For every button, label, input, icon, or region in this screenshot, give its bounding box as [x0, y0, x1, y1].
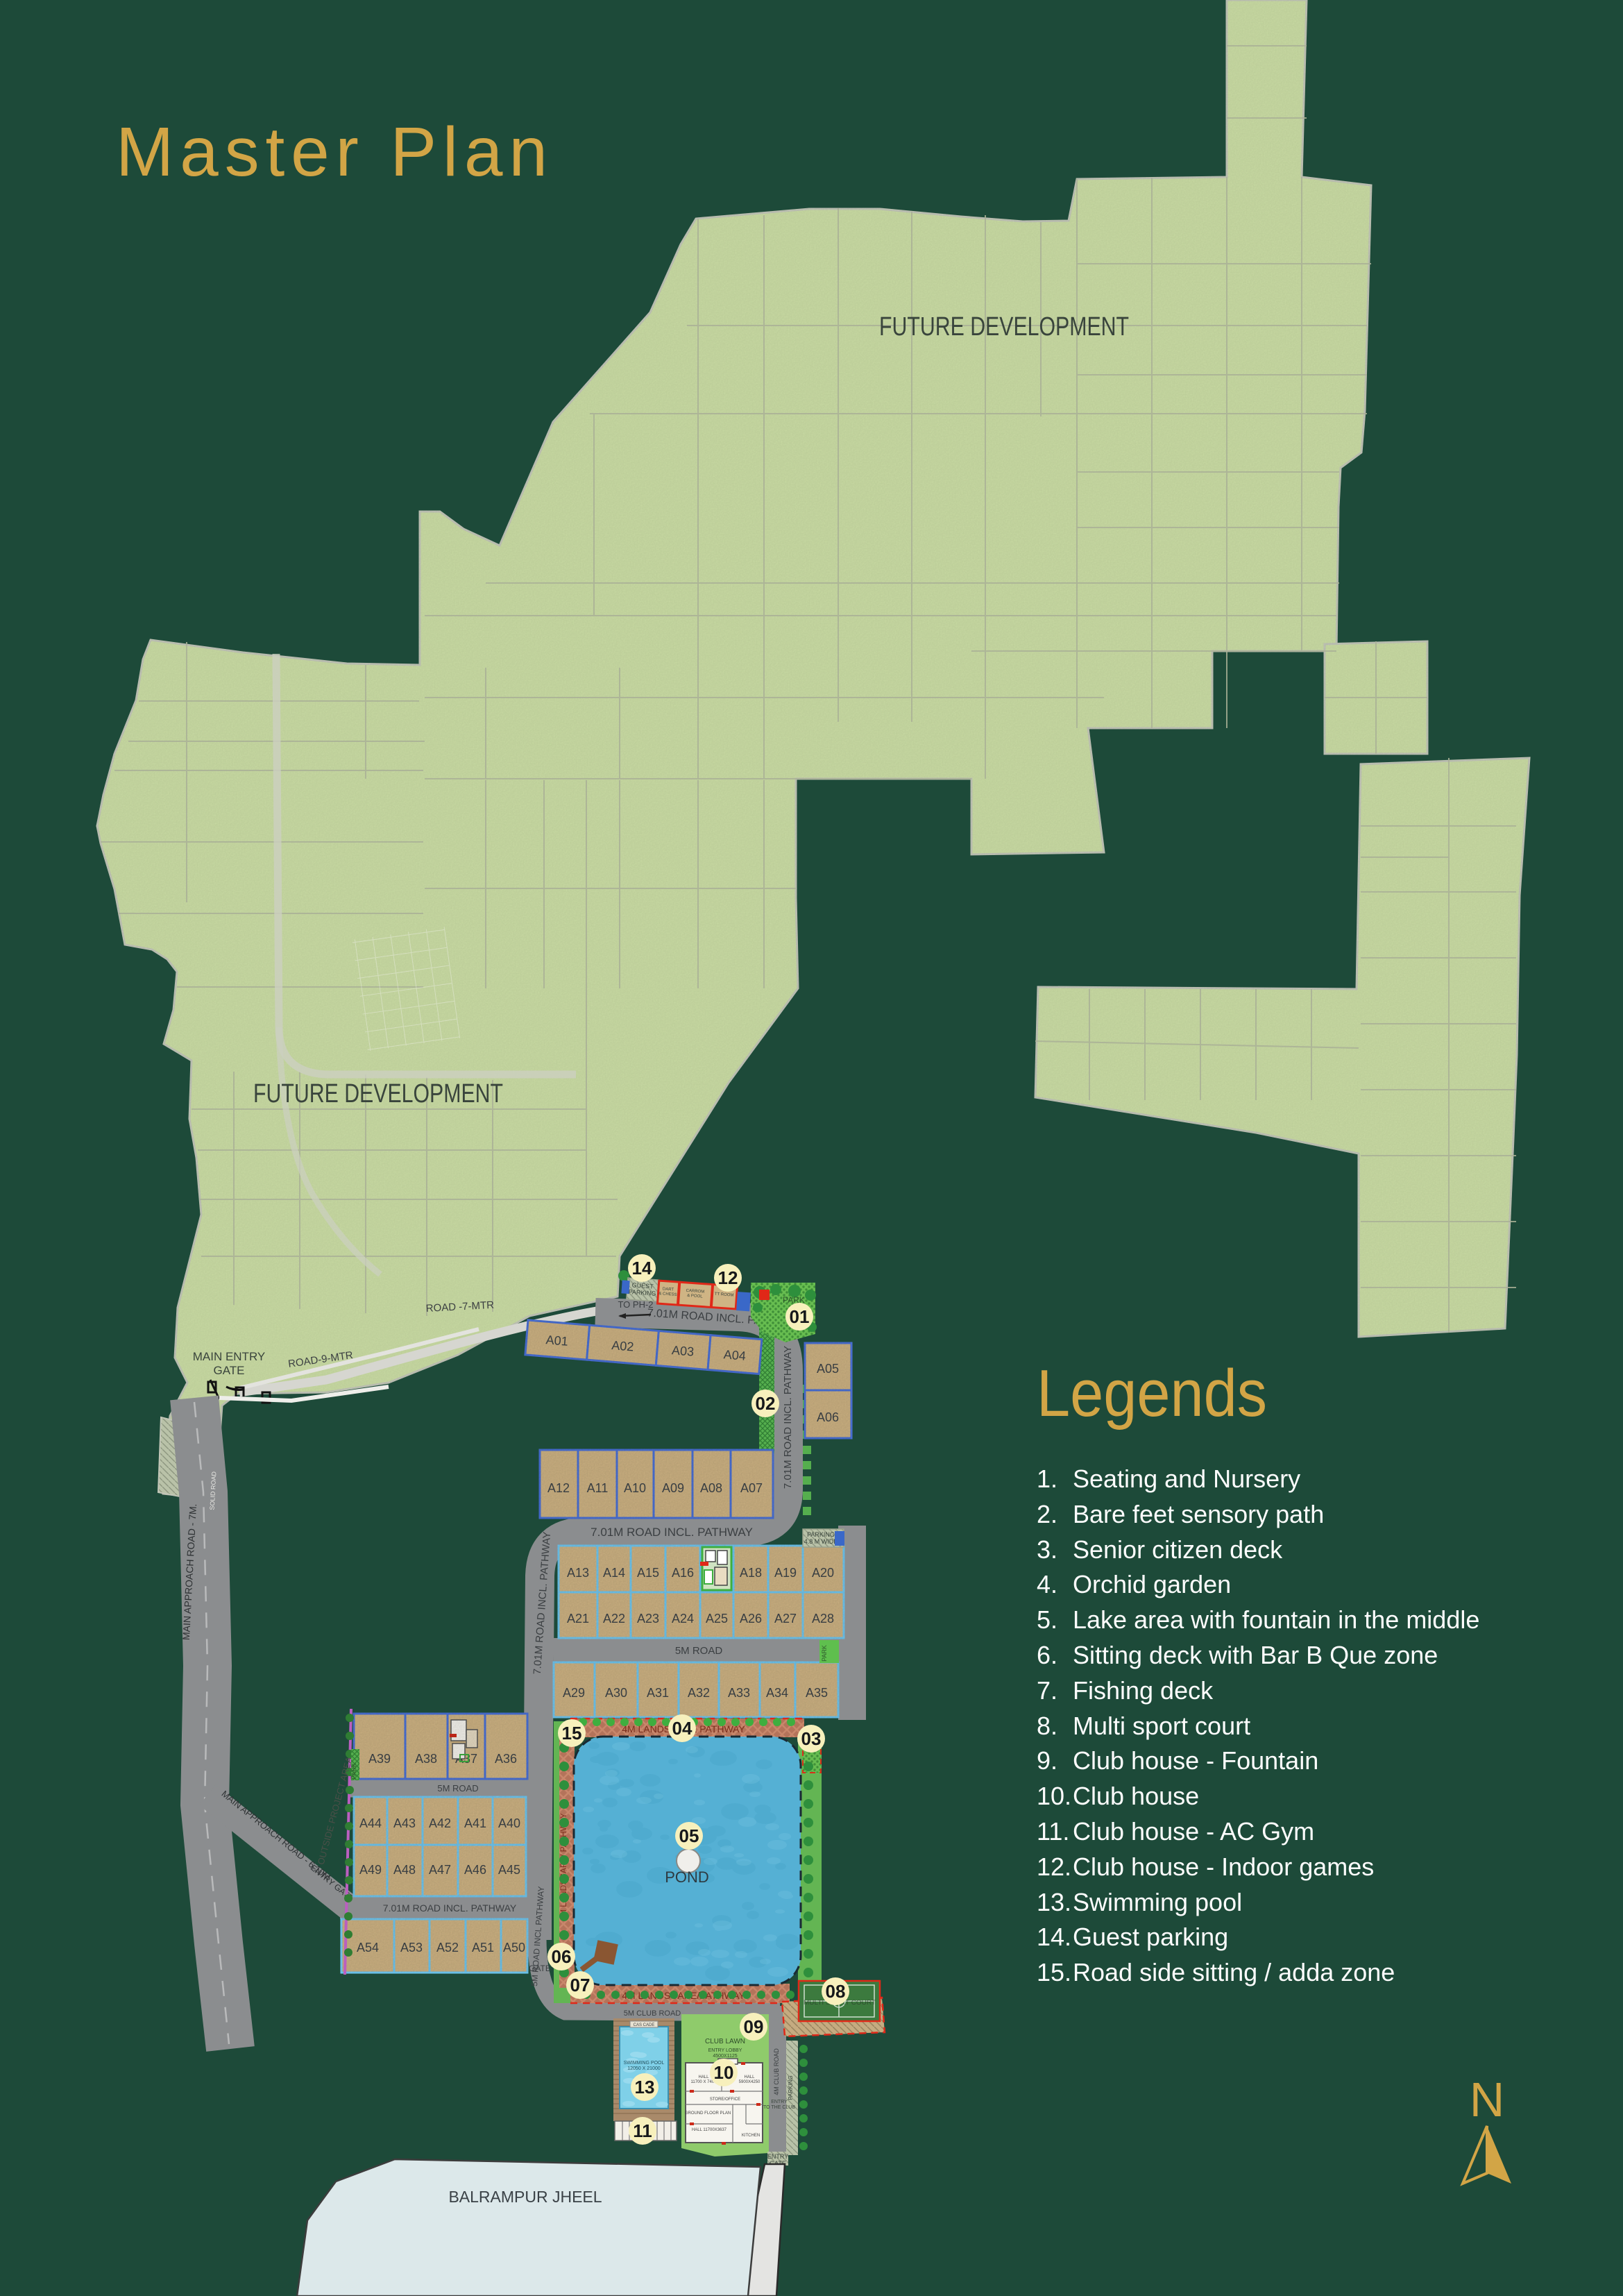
- svg-text:POND: POND: [665, 1868, 709, 1886]
- svg-text:5.: 5.: [1037, 1605, 1057, 1634]
- svg-text:4M LANDSCAPE/ PATHWAY: 4M LANDSCAPE/ PATHWAY: [559, 1813, 568, 1921]
- svg-text:Guest parking: Guest parking: [1073, 1923, 1228, 1951]
- svg-text:Orchid garden: Orchid garden: [1073, 1570, 1231, 1598]
- svg-text:Seating and Nursery: Seating and Nursery: [1073, 1464, 1300, 1493]
- svg-text:KITCHEN: KITCHEN: [742, 2134, 760, 2138]
- svg-text:GROUND FLOOR PLAN: GROUND FLOOR PLAN: [685, 2111, 731, 2116]
- svg-text:5M ROAD: 5M ROAD: [675, 1645, 723, 1657]
- svg-text:4M LANDSCAPE/PATHWAY: 4M LANDSCAPE/PATHWAY: [622, 1990, 745, 2001]
- svg-text:14.: 14.: [1037, 1923, 1071, 1951]
- svg-text:FUTURE DEVELOPMENT: FUTURE DEVELOPMENT: [879, 312, 1129, 341]
- svg-text:5M CLUB ROAD: 5M CLUB ROAD: [624, 2009, 681, 2018]
- svg-text:06: 06: [552, 1946, 572, 1967]
- svg-text:ENTRY: ENTRY: [771, 2100, 788, 2104]
- svg-text:10: 10: [714, 2062, 734, 2083]
- svg-text:GATE: GATE: [213, 1364, 244, 1377]
- svg-text:04: 04: [672, 1718, 692, 1739]
- svg-text:7.: 7.: [1037, 1676, 1057, 1705]
- svg-text:ENTRY LOBBY: ENTRY LOBBY: [708, 2048, 742, 2053]
- svg-text:Legends: Legends: [1037, 1356, 1267, 1430]
- svg-text:FUTURE DEVELOPMENT: FUTURE DEVELOPMENT: [253, 1079, 503, 1108]
- svg-text:PARKING: PARKING: [788, 2075, 794, 2100]
- svg-text:4.: 4.: [1037, 1570, 1057, 1598]
- svg-text:11: 11: [633, 2120, 652, 2141]
- svg-text:7.01M ROAD INCL. PATHWAY: 7.01M ROAD INCL. PATHWAY: [590, 1526, 753, 1539]
- svg-text:Bare feet sensory path: Bare feet sensory path: [1073, 1500, 1324, 1528]
- svg-text:15: 15: [562, 1723, 582, 1744]
- svg-text:8.: 8.: [1037, 1712, 1057, 1740]
- svg-text:CLUB LAWN: CLUB LAWN: [705, 2038, 745, 2045]
- svg-text:PARK: PARK: [350, 1763, 357, 1780]
- svg-text:7.01M ROAD INCL. PATHWAY: 7.01M ROAD INCL. PATHWAY: [782, 1346, 794, 1489]
- svg-text:Club house - Fountain: Club house - Fountain: [1073, 1746, 1318, 1775]
- svg-text:08: 08: [826, 1981, 846, 2002]
- svg-text:Club house - AC Gym: Club house - AC Gym: [1073, 1817, 1314, 1846]
- svg-text:PARKING: PARKING: [807, 1531, 835, 1538]
- svg-text:2.: 2.: [1037, 1500, 1057, 1528]
- svg-text:02: 02: [756, 1393, 776, 1414]
- svg-text:5900X4250: 5900X4250: [739, 2080, 760, 2084]
- svg-text:15.: 15.: [1037, 1958, 1071, 1986]
- svg-text:4500X1125: 4500X1125: [713, 2054, 737, 2059]
- svg-text:13: 13: [635, 2077, 655, 2097]
- svg-text:05: 05: [679, 1825, 699, 1846]
- svg-text:TO THE CLUB: TO THE CLUB: [763, 2105, 795, 2110]
- svg-text:N: N: [1470, 2073, 1505, 2127]
- svg-text:HALL: HALL: [698, 2075, 709, 2079]
- svg-text:Sitting deck with Bar B Que zo: Sitting deck with Bar B Que zone: [1073, 1641, 1438, 1669]
- svg-text:GATE: GATE: [529, 1964, 551, 1973]
- svg-text:Lake area with fountain in the: Lake area with fountain in the middle: [1073, 1605, 1479, 1634]
- svg-text:CAS CADE: CAS CADE: [634, 2023, 655, 2027]
- svg-text:3.: 3.: [1037, 1535, 1057, 1564]
- svg-text:03: 03: [801, 1728, 822, 1749]
- svg-text:Fishing deck: Fishing deck: [1073, 1676, 1214, 1705]
- svg-text:10.: 10.: [1037, 1782, 1071, 1810]
- svg-text:HALL: HALL: [744, 2075, 755, 2079]
- svg-text:STORE/OFFICE: STORE/OFFICE: [710, 2097, 740, 2102]
- svg-text:ENTRY: ENTRY: [767, 2153, 788, 2160]
- svg-text:DART: DART: [663, 1288, 674, 1292]
- svg-text:HALL 11700X3637: HALL 11700X3637: [692, 2128, 727, 2132]
- svg-text:MAIN ENTRY: MAIN ENTRY: [193, 1350, 266, 1363]
- svg-text:BALRAMPUR JHEEL: BALRAMPUR JHEEL: [448, 2188, 602, 2206]
- svg-text:7.01M ROAD INCL. PATHWAY: 7.01M ROAD INCL. PATHWAY: [383, 1902, 517, 1914]
- svg-text:9.: 9.: [1037, 1746, 1057, 1775]
- svg-text:Club house - Indoor games: Club house - Indoor games: [1073, 1852, 1374, 1881]
- svg-text:5M ROAD: 5M ROAD: [437, 1783, 478, 1793]
- svg-text:Senior citizen deck: Senior citizen deck: [1073, 1535, 1283, 1564]
- svg-text:Club house: Club house: [1073, 1782, 1199, 1810]
- svg-text:13.: 13.: [1037, 1888, 1071, 1916]
- svg-text:SWIMMING POOL: SWIMMING POOL: [624, 2061, 665, 2066]
- svg-text:Multi sport court: Multi sport court: [1073, 1712, 1250, 1740]
- svg-text:07: 07: [570, 1975, 590, 1995]
- svg-text:4M CLUB ROAD: 4M CLUB ROAD: [773, 2048, 780, 2095]
- svg-text:Swimming pool: Swimming pool: [1073, 1888, 1242, 1916]
- svg-text:4.8 M WIDE: 4.8 M WIDE: [804, 1538, 838, 1545]
- svg-text:11.: 11.: [1037, 1817, 1069, 1846]
- svg-text:6.: 6.: [1037, 1641, 1057, 1669]
- svg-text:Road side sitting / adda zone: Road side sitting / adda zone: [1073, 1958, 1395, 1986]
- svg-text:12.: 12.: [1037, 1852, 1071, 1881]
- svg-text:12: 12: [718, 1267, 738, 1288]
- svg-text:14: 14: [632, 1258, 652, 1278]
- svg-text:09: 09: [744, 2016, 764, 2037]
- svg-text:01: 01: [790, 1306, 810, 1327]
- svg-text:1.: 1.: [1037, 1464, 1057, 1493]
- svg-text:12050 X 21000: 12050 X 21000: [627, 2066, 661, 2071]
- svg-text:PARK: PARK: [821, 1645, 828, 1662]
